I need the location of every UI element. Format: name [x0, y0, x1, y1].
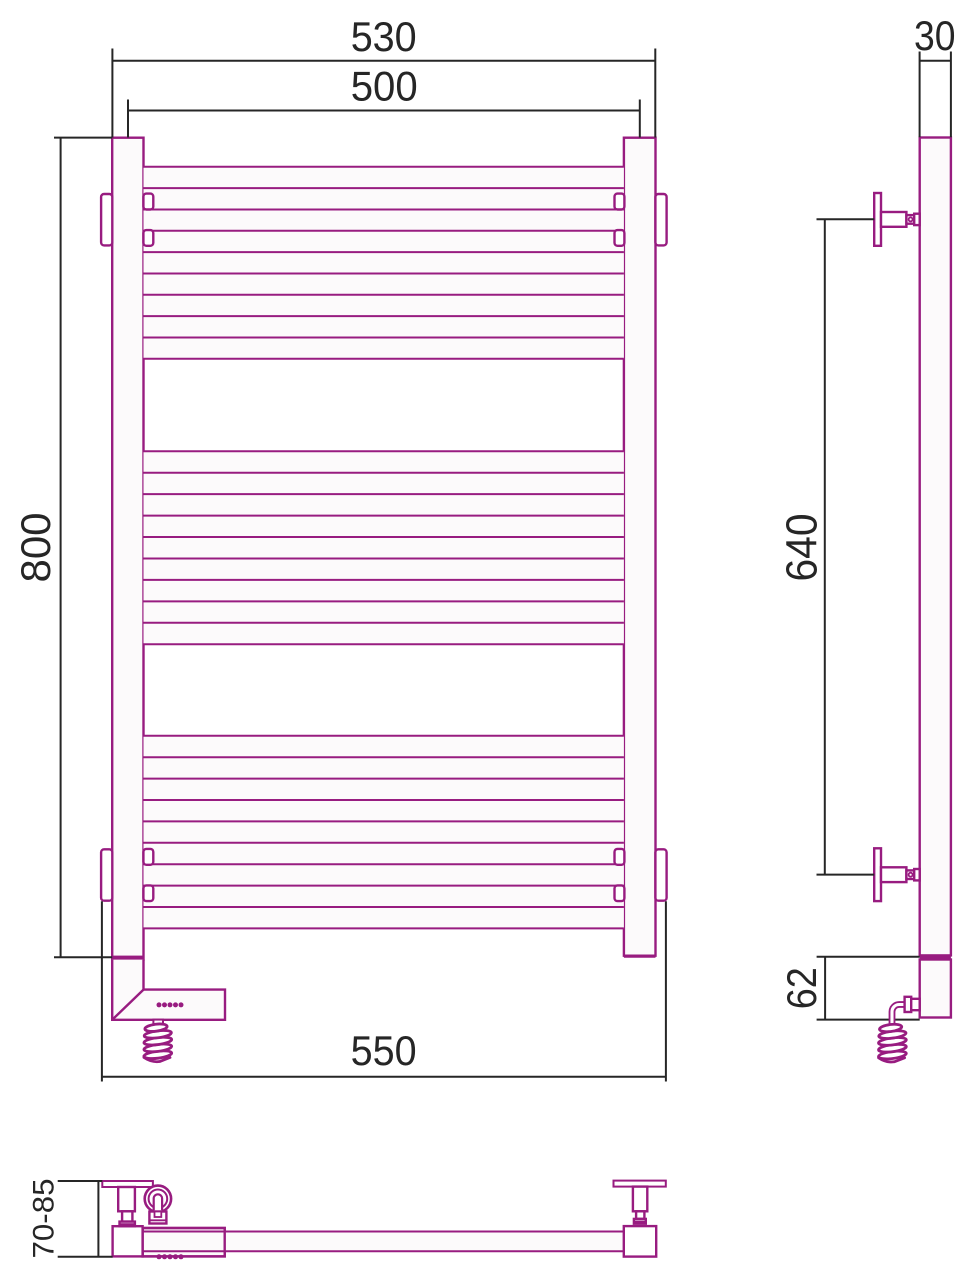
svg-text:640: 640 [778, 514, 827, 582]
svg-text:800: 800 [12, 513, 59, 583]
svg-text:30: 30 [914, 12, 956, 59]
svg-text:62: 62 [778, 967, 825, 1009]
svg-text:530: 530 [351, 13, 417, 60]
svg-text:550: 550 [351, 1027, 417, 1074]
svg-text:70-85: 70-85 [28, 1179, 61, 1259]
svg-text:500: 500 [351, 62, 418, 109]
